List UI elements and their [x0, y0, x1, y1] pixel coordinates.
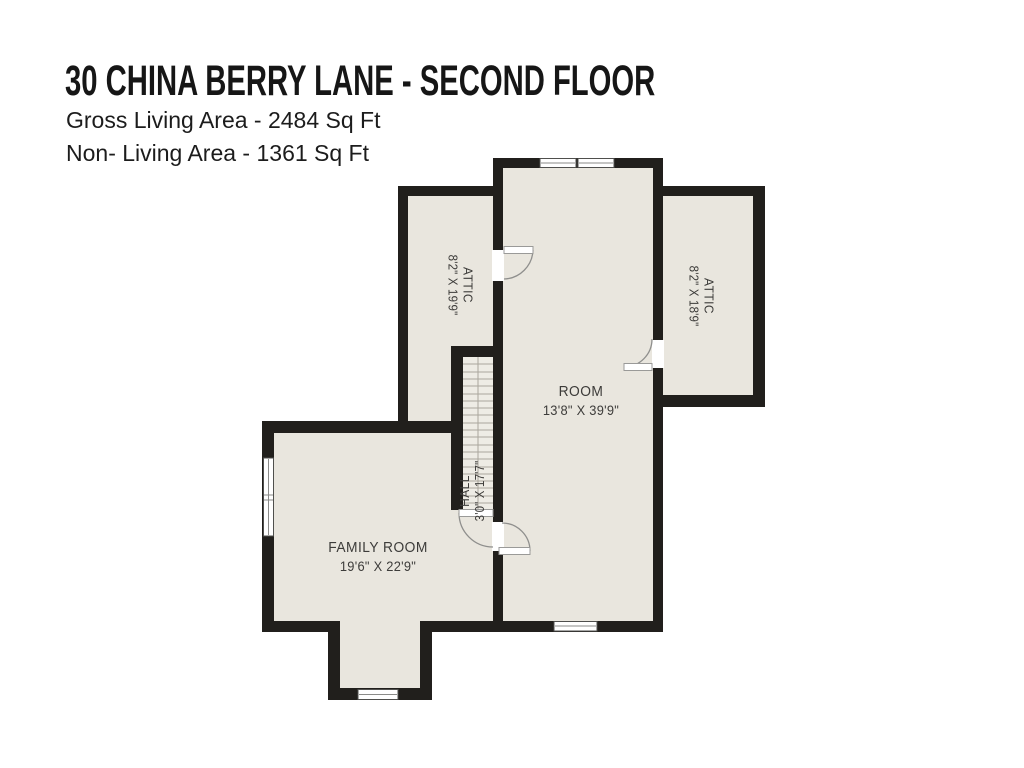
wall-notch-right — [420, 621, 432, 700]
family-room-dims: 19'6" X 22'9" — [340, 559, 416, 575]
wall-room-bottom — [423, 621, 663, 632]
attic-right-name: ATTIC — [701, 278, 716, 314]
door-opening-attic-right — [652, 340, 664, 368]
wall-attic-left-top — [398, 186, 503, 196]
hall-name: HALL — [458, 475, 473, 507]
floor-plan: ROOM 13'8" X 39'9" FAMILY ROOM 19'6" X 2… — [0, 0, 1024, 768]
door-leaf-room-bottom — [499, 548, 530, 555]
door-opening-room-bottom — [492, 522, 504, 551]
room-dims: 13'8" X 39'9" — [543, 403, 619, 419]
wall-attic-right-side — [753, 186, 765, 407]
page: { "header": { "title": "30 CHINA BERRY L… — [0, 0, 1024, 768]
wall-attic-right-top — [653, 186, 765, 196]
room-name: ROOM — [559, 384, 604, 401]
family-room-name: FAMILY ROOM — [328, 540, 428, 557]
door-leaf-attic-right — [624, 364, 652, 371]
door-leaf-attic-left — [504, 247, 533, 254]
wall-stair-top — [451, 346, 493, 357]
attic-left-dims: 8'2" X 19'9" — [445, 255, 460, 316]
wall-attic-right-bottom — [653, 395, 765, 407]
wall-family-top — [262, 421, 462, 433]
hall-dims: 3'0" X 17'7" — [473, 461, 488, 522]
door-opening-attic-left — [492, 250, 504, 281]
wall-attic-left-side — [398, 186, 408, 431]
attic-left-name: ATTIC — [460, 267, 475, 303]
attic-right-dims: 8'2" X 18'9" — [686, 266, 701, 327]
wall-room-left — [493, 158, 503, 632]
